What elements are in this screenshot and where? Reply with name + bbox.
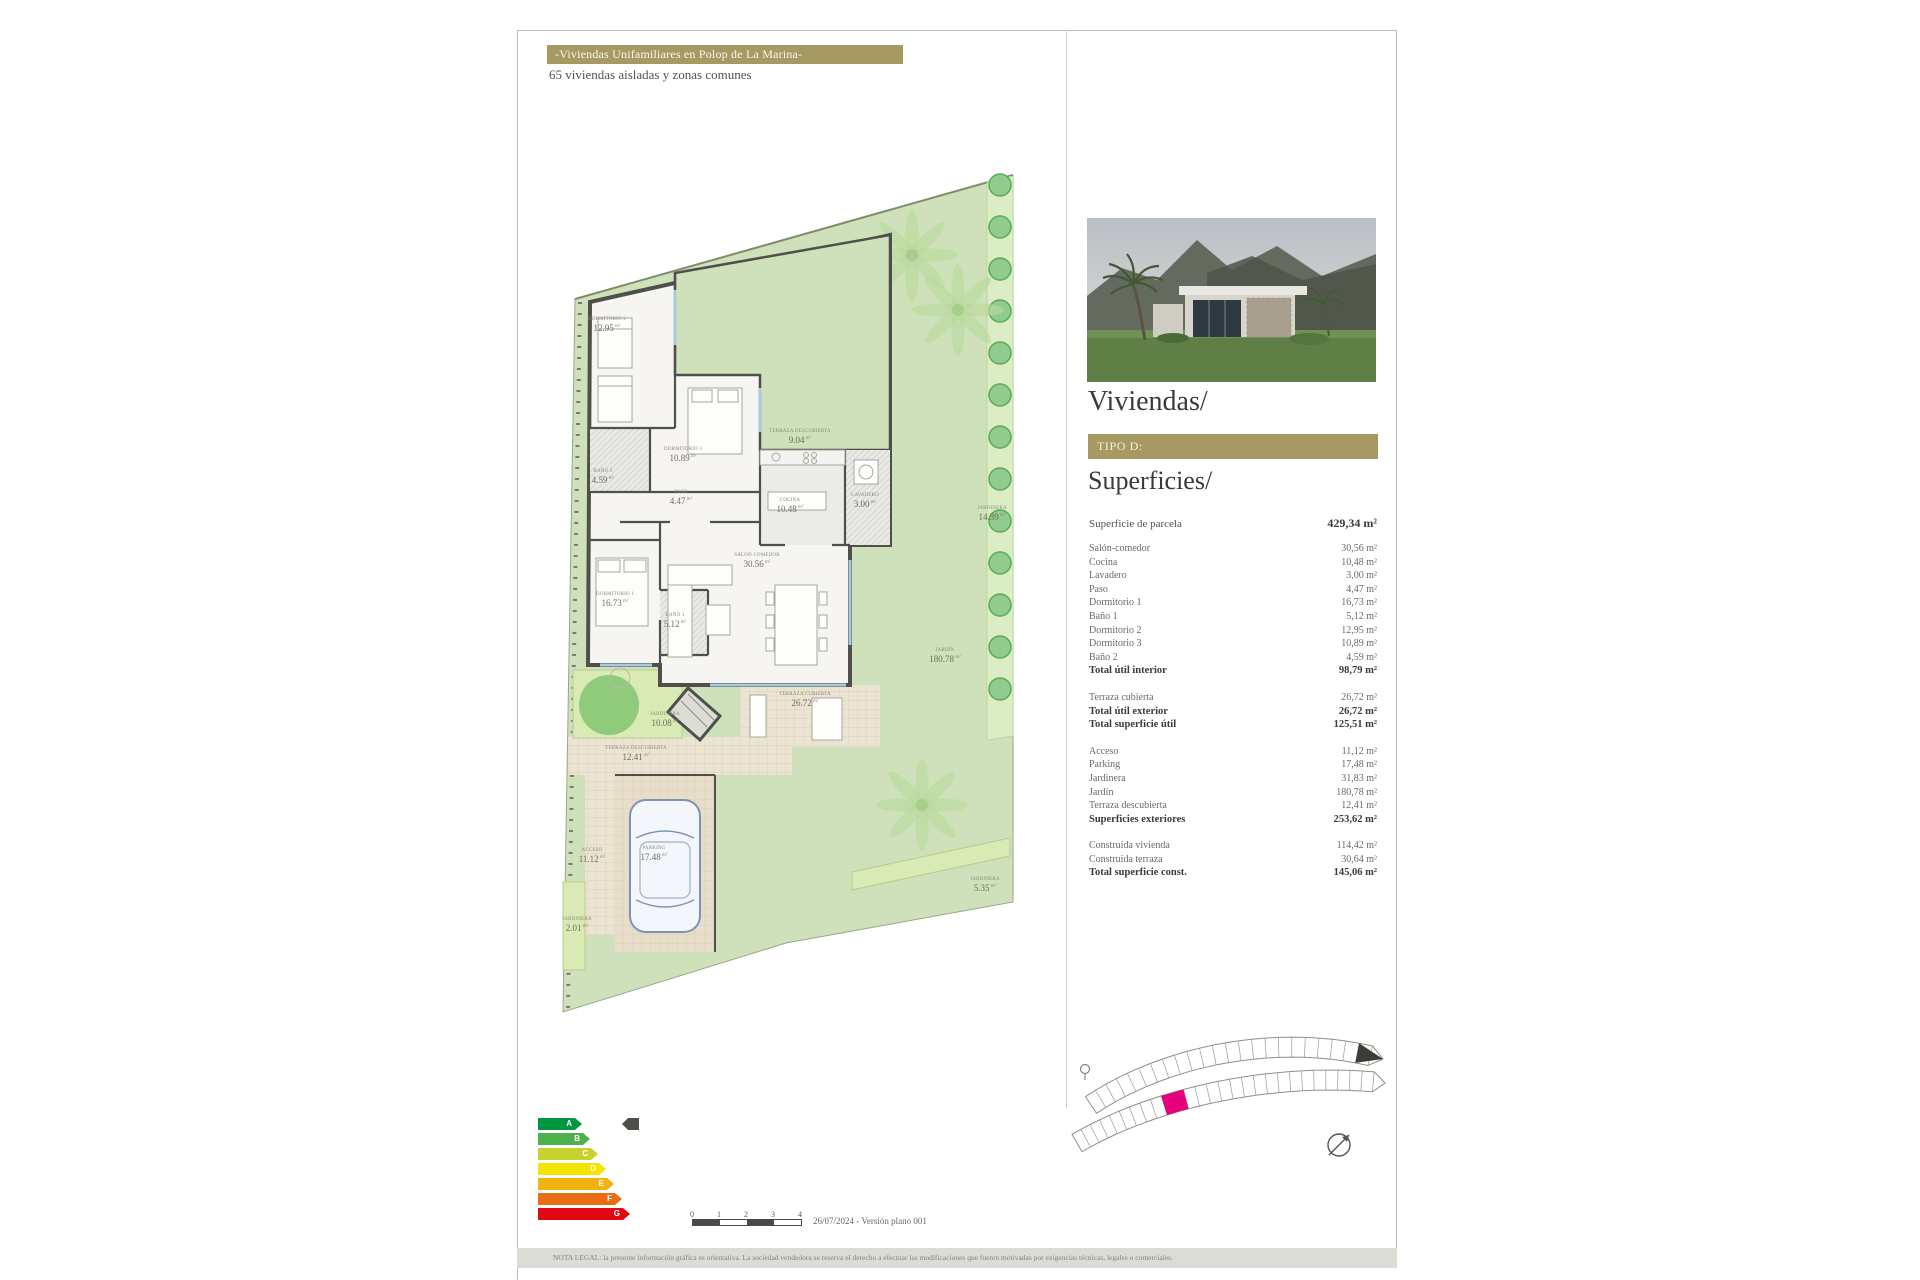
house-render-photo [1087,218,1376,382]
sheet-right-border [1396,30,1397,1268]
surface-row: Superficies exteriores253,62 m² [1089,814,1377,828]
surface-row-label: Terraza cubierta [1089,692,1154,703]
surface-row-value: 3,00 m² [1346,570,1377,581]
document-title-bar: -Viviendas Unifamiliares en Polop de La … [547,45,903,64]
surfaces-table: Salón-comedor30,56 m²Cocina10,48 m²Lavad… [1089,543,1377,894]
surface-group: Salón-comedor30,56 m²Cocina10,48 m²Lavad… [1089,543,1377,679]
surface-row-label: Acceso [1089,746,1118,757]
surface-row: Parking17,48 m² [1089,759,1377,773]
surface-row-label: Total útil interior [1089,665,1167,676]
parcel-surface-label: Superficie de parcela [1089,518,1182,530]
energy-bar-g: G [538,1208,630,1220]
scale-tick: 3 [771,1210,775,1219]
surface-row: Terraza descubierta12,41 m² [1089,800,1377,814]
surface-row-label: Construida terraza [1089,854,1163,865]
surface-row: Construida vivienda114,42 m² [1089,840,1377,854]
surface-row-label: Salón-comedor [1089,543,1150,554]
surface-row-value: 114,42 m² [1337,840,1377,851]
surface-row: Total útil exterior26,72 m² [1089,706,1377,720]
surface-row: Total superficie const.145,06 m² [1089,867,1377,881]
surface-group: Acceso11,12 m²Parking17,48 m²Jardinera31… [1089,746,1377,828]
surface-row-label: Baño 2 [1089,652,1118,663]
surface-row: Total útil interior98,79 m² [1089,665,1377,679]
surface-row-label: Dormitorio 3 [1089,638,1142,649]
surface-row-value: 17,48 m² [1341,759,1377,770]
surface-row: Paso4,47 m² [1089,584,1377,598]
scale-tick: 1 [717,1210,721,1219]
surface-row-label: Terraza descubierta [1089,800,1167,811]
parcel-surface-value: 429,34 m² [1327,516,1377,531]
surface-row: Dormitorio 212,95 m² [1089,625,1377,639]
surface-row: Cocina10,48 m² [1089,557,1377,571]
surface-row-label: Total superficie const. [1089,867,1187,878]
surface-row-value: 4,47 m² [1346,584,1377,595]
surface-row: Salón-comedor30,56 m² [1089,543,1377,557]
surface-row-value: 26,72 m² [1339,706,1377,717]
surface-row-value: 145,06 m² [1334,867,1377,878]
energy-bar-a: A [538,1118,582,1130]
surface-row-label: Parking [1089,759,1120,770]
energy-bar-b: B [538,1133,590,1145]
surface-row-label: Superficies exteriores [1089,814,1185,825]
surface-row-value: 12,41 m² [1341,800,1377,811]
surface-row-value: 98,79 m² [1339,665,1377,676]
floor-plan [560,160,1040,1040]
parcel-surface-row: Superficie de parcela 429,34 m² [1089,516,1377,531]
surface-row: Jardinera31,83 m² [1089,773,1377,787]
energy-bar-e: E [538,1178,614,1190]
type-label-bar: TIPO D: [1088,434,1378,459]
scale-numbers: 01234 [690,1210,806,1219]
surface-row: Total superficie útil125,51 m² [1089,719,1377,733]
energy-bar-d: D [538,1163,606,1175]
surface-row-label: Paso [1089,584,1108,595]
scale-tick: 4 [798,1210,802,1219]
surface-row-label: Total útil exterior [1089,706,1168,717]
surface-row-label: Construida vivienda [1089,840,1170,851]
energy-bar-c: C [538,1148,598,1160]
surface-row: Baño 24,59 m² [1089,652,1377,666]
energy-bar-f: F [538,1193,622,1205]
surface-row: Jardín180,78 m² [1089,787,1377,801]
surface-row: Baño 15,12 m² [1089,611,1377,625]
surface-row-value: 10,48 m² [1341,557,1377,568]
surface-row-value: 253,62 m² [1334,814,1377,825]
surface-row-value: 30,56 m² [1341,543,1377,554]
surface-row-value: 4,59 m² [1346,652,1377,663]
surface-row-value: 11,12 m² [1342,746,1377,757]
surface-row-label: Baño 1 [1089,611,1118,622]
site-plan [1071,1025,1391,1175]
access-marker-icon [1081,1065,1090,1081]
surface-row: Dormitorio 310,89 m² [1089,638,1377,652]
scale-tick: 0 [690,1210,694,1219]
surface-row-label: Total superficie útil [1089,719,1176,730]
surface-group: Construida vivienda114,42 m²Construida t… [1089,840,1377,881]
surface-row-value: 31,83 m² [1341,773,1377,784]
surface-row: Acceso11,12 m² [1089,746,1377,760]
surface-row-label: Dormitorio 2 [1089,625,1142,636]
surface-row-label: Dormitorio 1 [1089,597,1142,608]
scale-strip [692,1219,802,1226]
energy-rating-chart: ABCDEFG [538,1118,630,1223]
surfaces-heading: Superficies/ [1088,466,1212,496]
surface-row-label: Jardinera [1089,773,1126,784]
legal-note-bar: NOTA LEGAL: la presente información gráf… [517,1248,1397,1268]
scale-bar: 01234 [690,1210,806,1226]
surface-group: Terraza cubierta26,72 m²Total útil exter… [1089,692,1377,733]
car [630,800,700,932]
surface-row-value: 180,78 m² [1336,787,1377,798]
date-version-text: 26/07/2024 - Versión plano 001 [813,1216,927,1226]
surface-row: Dormitorio 116,73 m² [1089,597,1377,611]
floor-plan-drawing [560,160,1040,1040]
energy-rating-marker [622,1118,639,1130]
surface-row-label: Cocina [1089,557,1117,568]
surface-row-value: 12,95 m² [1341,625,1377,636]
scale-tick: 2 [744,1210,748,1219]
sheet-top-border [517,30,1397,31]
panel-divider [1066,30,1067,1108]
surface-row-value: 5,12 m² [1346,611,1377,622]
surface-row: Construida terraza30,64 m² [1089,854,1377,868]
sheet-left-border [517,30,518,1280]
north-compass-icon [1328,1134,1350,1156]
surface-row-value: 10,89 m² [1341,638,1377,649]
surface-row: Terraza cubierta26,72 m² [1089,692,1377,706]
document-subtitle: 65 viviendas aisladas y zonas comunes [549,67,752,83]
surface-row-label: Lavadero [1089,570,1127,581]
surface-row: Lavadero3,00 m² [1089,570,1377,584]
panel-heading: Viviendas/ [1088,386,1208,418]
surface-row-value: 16,73 m² [1341,597,1377,608]
surface-row-value: 125,51 m² [1334,719,1377,730]
surface-row-label: Jardín [1089,787,1113,798]
surface-row-value: 30,64 m² [1341,854,1377,865]
surface-row-value: 26,72 m² [1341,692,1377,703]
